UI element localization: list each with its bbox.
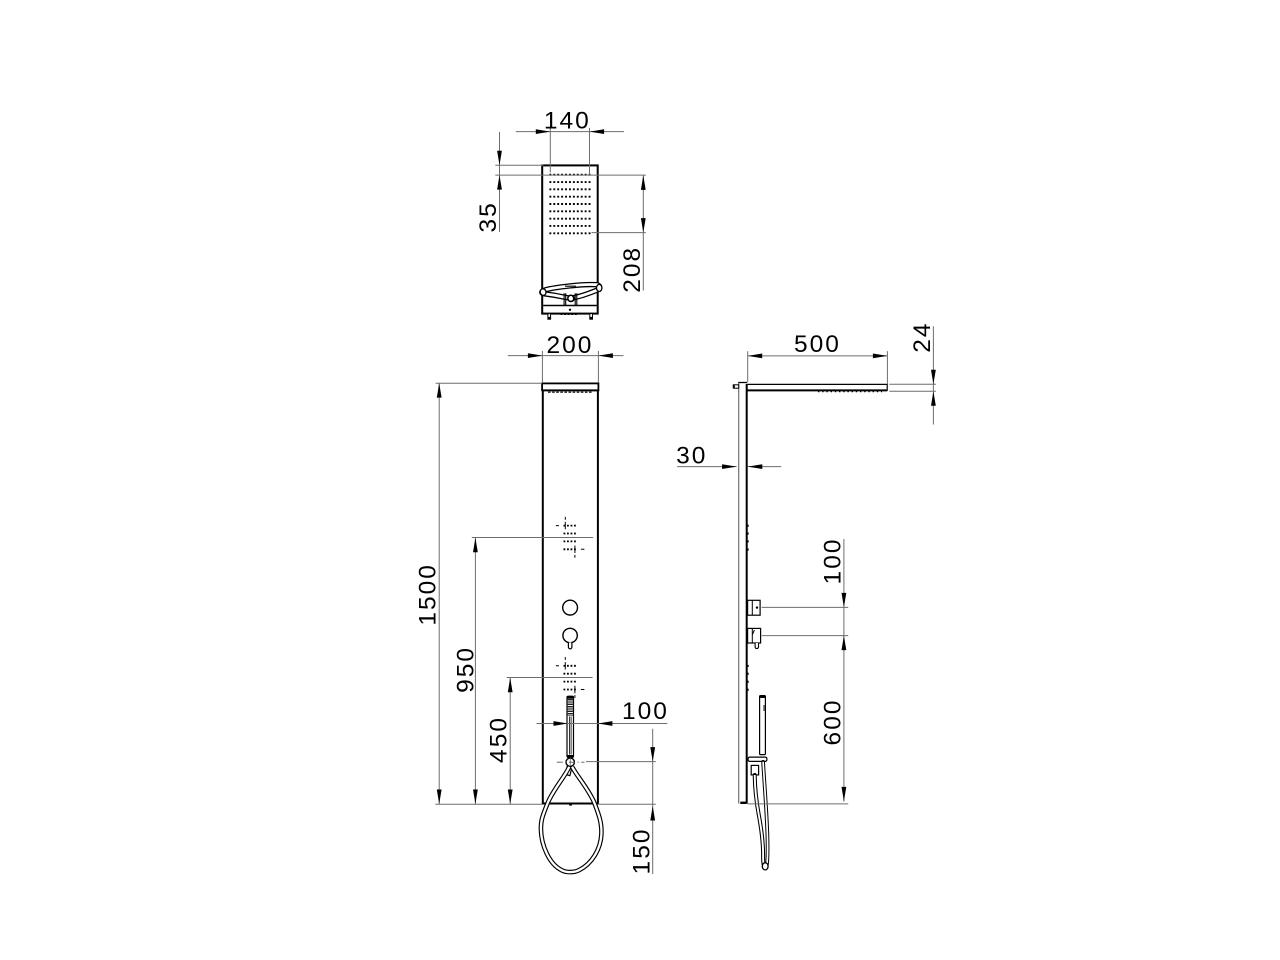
svg-text:24: 24 [909, 321, 936, 352]
svg-text:30: 30 [676, 442, 707, 469]
svg-text:208: 208 [619, 246, 646, 293]
svg-text:150: 150 [628, 828, 655, 875]
svg-text:600: 600 [819, 699, 846, 746]
svg-text:500: 500 [794, 331, 841, 358]
svg-text:950: 950 [452, 646, 479, 693]
svg-text:100: 100 [622, 698, 669, 725]
svg-text:1500: 1500 [415, 563, 442, 626]
svg-text:200: 200 [547, 332, 594, 359]
svg-text:450: 450 [486, 716, 513, 763]
svg-text:100: 100 [819, 538, 846, 585]
svg-text:35: 35 [475, 201, 502, 232]
svg-text:140: 140 [544, 107, 591, 134]
